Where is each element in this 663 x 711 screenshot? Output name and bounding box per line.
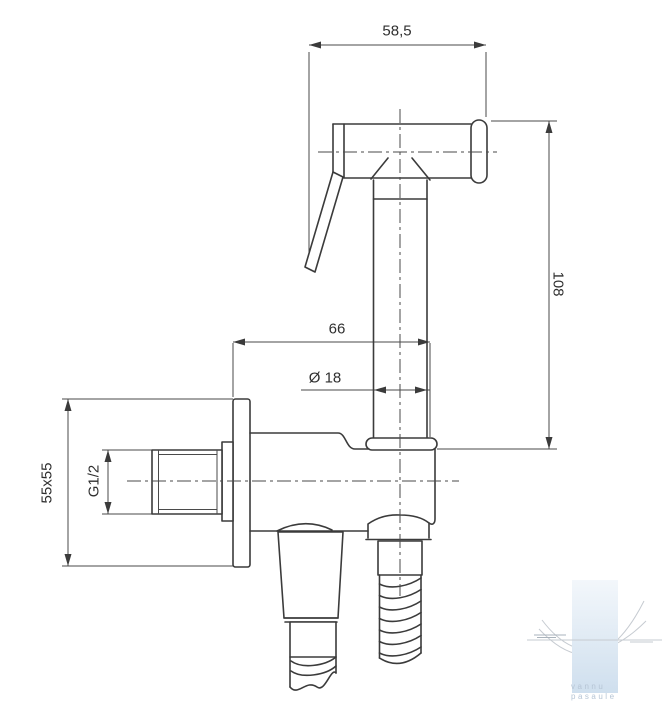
centerlines — [127, 109, 497, 596]
dim-wall-plate-label: 55x55 — [40, 463, 55, 504]
trigger-lever — [305, 172, 343, 272]
watermark-line2: pasaule — [571, 692, 631, 702]
cone-outlet — [278, 532, 343, 690]
watermark-graphic — [527, 580, 662, 693]
technical-drawing — [0, 0, 663, 711]
dim-depth-label: 66 — [329, 322, 346, 337]
watermark-line1: vannu — [571, 682, 631, 692]
dim-thread-label: G1/2 — [87, 465, 102, 498]
wall-plate — [233, 399, 250, 567]
dim-overall-height-label: 108 — [551, 271, 566, 296]
watermark: vannu pasaule — [571, 682, 631, 702]
handle-rest-collar — [366, 438, 437, 450]
dim-handle-diameter-label: Ø 18 — [309, 371, 342, 386]
valve-body — [250, 433, 437, 540]
watermark-bar — [572, 580, 618, 693]
dim-head-width-label: 58,5 — [382, 24, 411, 39]
drawing-canvas: 58,5 108 66 Ø 18 55x55 G1/2 vannu pasaul… — [0, 0, 663, 711]
